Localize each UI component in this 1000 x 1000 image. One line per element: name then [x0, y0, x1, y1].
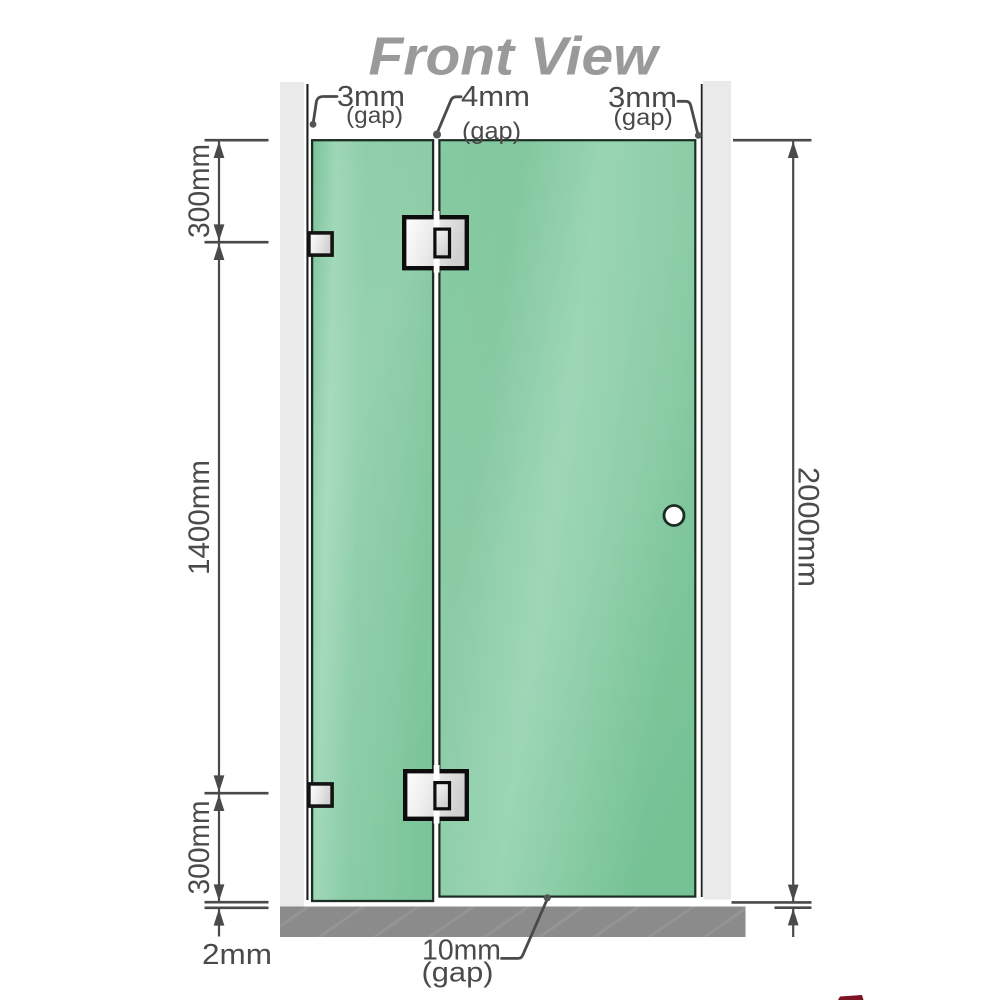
- svg-text:300mm: 300mm: [183, 144, 216, 238]
- svg-text:1400mm: 1400mm: [183, 460, 216, 575]
- svg-text:Front View: Front View: [369, 27, 661, 87]
- svg-text:(gap): (gap): [462, 118, 521, 145]
- svg-text:(gap): (gap): [613, 104, 673, 130]
- svg-text:2mm: 2mm: [202, 939, 272, 971]
- svg-text:4mm: 4mm: [461, 81, 530, 113]
- svg-text:(gap): (gap): [346, 102, 403, 128]
- svg-text:300mm: 300mm: [183, 801, 216, 895]
- svg-text:(gap): (gap): [422, 957, 494, 988]
- svg-text:2000mm: 2000mm: [792, 467, 825, 587]
